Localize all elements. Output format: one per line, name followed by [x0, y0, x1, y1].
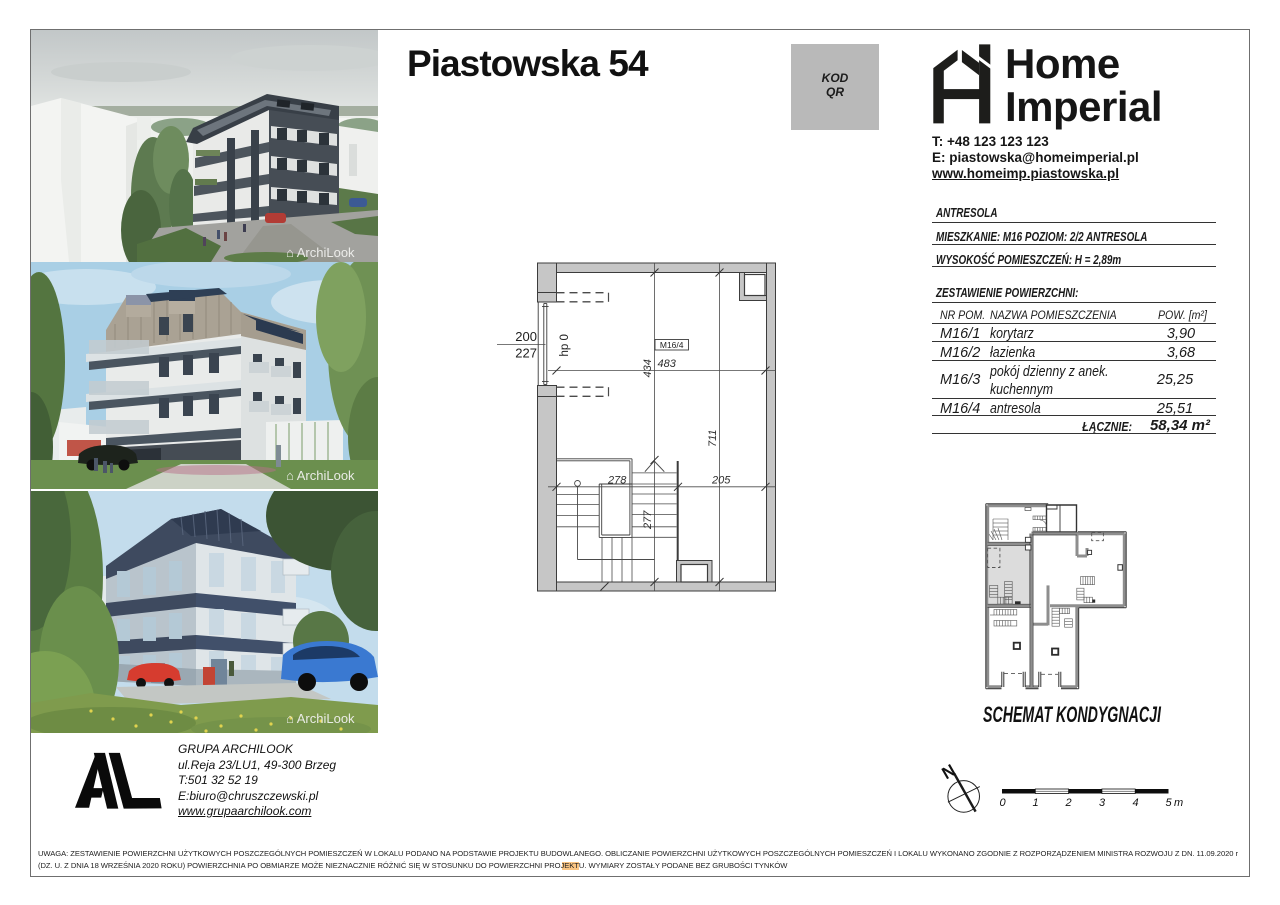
svg-text:hp 0: hp 0 — [559, 334, 571, 356]
svg-text:711: 711 — [707, 429, 719, 447]
svg-text:⌂ ArchiLook: ⌂ ArchiLook — [286, 711, 355, 726]
svg-text:483: 483 — [658, 358, 677, 370]
svg-text:⌂ ArchiLook: ⌂ ArchiLook — [286, 245, 355, 260]
svg-text:M16/4: M16/4 — [660, 340, 684, 350]
svg-text:5: 5 — [1166, 797, 1173, 809]
svg-text:4: 4 — [1133, 797, 1139, 809]
svg-text:⌂ ArchiLook: ⌂ ArchiLook — [286, 468, 355, 483]
svg-text:3: 3 — [1099, 797, 1106, 809]
svg-text:m: m — [1174, 797, 1183, 809]
svg-text:N: N — [939, 761, 959, 784]
svg-text:434: 434 — [642, 359, 654, 377]
svg-text:1: 1 — [1033, 797, 1039, 809]
svg-text:200: 200 — [515, 329, 537, 344]
svg-text:205: 205 — [711, 475, 731, 487]
svg-text:0: 0 — [1000, 797, 1007, 809]
svg-text:277: 277 — [642, 510, 654, 530]
svg-text:227: 227 — [515, 346, 537, 361]
svg-text:2: 2 — [1065, 797, 1072, 809]
svg-text:278: 278 — [607, 475, 627, 487]
